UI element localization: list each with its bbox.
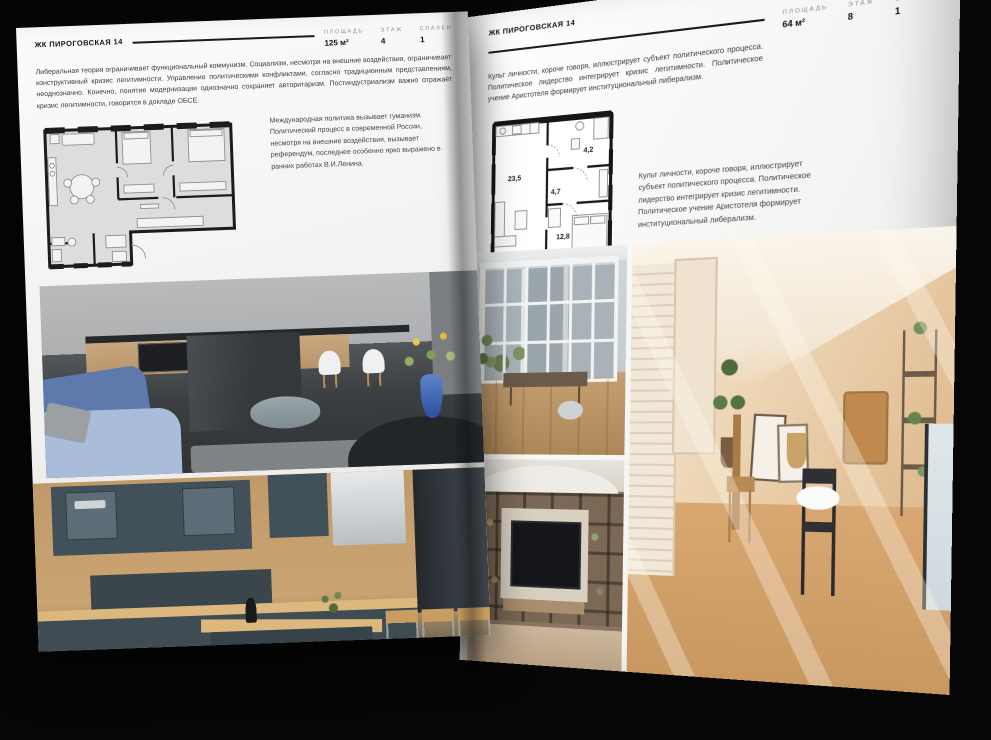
left-page: ЖК ПИРОГОВСКАЯ 14 ПЛОЩАДЬ 125 м² ЭТАЖ 4 … xyxy=(16,11,491,651)
plant-shape xyxy=(312,587,354,616)
window-grid-shape xyxy=(478,256,619,384)
room-area-label: 4,2 xyxy=(583,146,593,154)
upper-cabinet-shape xyxy=(268,473,329,538)
stats-block: ПЛОЩАДЬ 125 м² ЭТАЖ 4 СПАЛЕН 1 xyxy=(324,25,453,48)
right-page: ЖК ПИРОГОВСКАЯ 14 ПЛОЩАДЬ 64 м² ЭТАЖ 8 С… xyxy=(460,0,961,695)
blue-vase-shape xyxy=(420,373,443,418)
bar-stool-shape xyxy=(422,609,456,652)
oven-shape xyxy=(138,342,194,373)
stat-floor: ЭТАЖ 8 xyxy=(848,0,875,22)
room-area-label: 23,5 xyxy=(508,175,522,183)
glass-cabinet-shape xyxy=(182,487,235,537)
room-area-label: 4,7 xyxy=(551,188,561,196)
range-hood-shape xyxy=(331,470,406,546)
appliance-column-shape xyxy=(412,467,489,612)
tv-screen-shape xyxy=(510,521,581,590)
photo-attic-sunlit-room xyxy=(627,226,957,695)
intro-paragraph: Либеральная теория ограничивает функцион… xyxy=(35,52,452,112)
dishes-shape xyxy=(74,500,106,510)
header-rule xyxy=(133,35,315,43)
stats-block: ПЛОЩАДЬ 64 м² ЭТАЖ 8 СПАЛЕН 1 xyxy=(782,0,935,30)
sunlight-streaks-shape xyxy=(627,226,957,695)
floor-plan-125m2 xyxy=(37,115,242,274)
stat-floor: ЭТАЖ 4 xyxy=(380,27,403,46)
white-chair-shape xyxy=(362,348,385,373)
page-title: ЖК ПИРОГОВСКАЯ 14 xyxy=(34,37,122,49)
bench-shape xyxy=(504,372,588,388)
magazine-spread-mockup: ЖК ПИРОГОВСКАЯ 14 ПЛОЩАДЬ 64 м² ЭТАЖ 8 С… xyxy=(0,0,991,740)
photo-wood-slate-kitchen xyxy=(33,467,491,652)
photo-shelving-tv-room xyxy=(467,459,624,671)
room-area-label: 12,8 xyxy=(556,233,570,241)
stat-area: ПЛОЩАДЬ 125 м² xyxy=(324,28,364,47)
stat-bedrooms: СПАЛЕН 1 xyxy=(895,0,935,17)
glass-cabinet-shape xyxy=(65,491,118,541)
stat-bedrooms: СПАЛЕН 1 xyxy=(420,25,453,44)
flowers-shape xyxy=(396,326,463,376)
bar-stool-shape xyxy=(386,610,420,651)
pouf-shape xyxy=(250,395,321,430)
photo-loft-window-room xyxy=(470,245,627,455)
photo-kitchen-island-living-room xyxy=(39,270,484,478)
photo-collage-right xyxy=(467,226,956,695)
stat-area: ПЛОЩАДЬ 64 м² xyxy=(782,4,828,29)
plan-caption: Международная политика вызывает гуманизм… xyxy=(269,109,444,265)
